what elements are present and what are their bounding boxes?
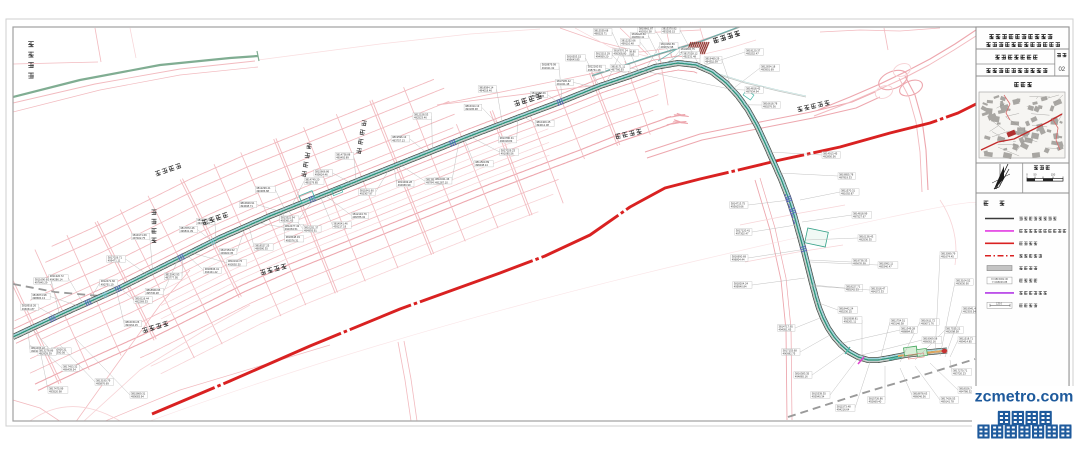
svg-text:493777.95: 493777.95 [165,276,178,280]
svg-text:493295.15: 493295.15 [662,30,675,34]
svg-text:495252.47: 495252.47 [746,52,759,56]
svg-text:493603.66: 493603.66 [731,205,744,209]
svg-text:498761.48: 498761.48 [588,68,601,72]
svg-text:493940.34: 493940.34 [812,395,825,399]
svg-text:491287.10: 491287.10 [435,180,448,184]
svg-text:495300.80: 495300.80 [614,51,627,55]
svg-text:494286.14: 494286.14 [50,277,63,281]
svg-text:496439.54: 496439.54 [63,368,76,372]
svg-text:492303.54: 492303.54 [963,310,976,314]
svg-text:490386.88: 490386.88 [256,189,269,193]
svg-text:490592.30: 490592.30 [228,262,241,266]
svg-text:497402.75: 497402.75 [132,236,145,240]
svg-text:492850.56: 492850.56 [823,155,836,159]
svg-text:498684.13: 498684.13 [32,296,45,300]
svg-text:493030.90: 493030.90 [956,282,969,286]
svg-text:497934.94: 497934.94 [746,90,759,94]
svg-text:499110.48: 499110.48 [621,42,634,46]
svg-text:499471.11: 499471.11 [108,259,121,263]
svg-text:493720.23: 493720.23 [953,372,966,376]
svg-text:494272.33: 494272.33 [871,290,884,294]
svg-text:490316.38: 490316.38 [639,30,652,34]
svg-text:497527.67: 497527.67 [853,215,866,219]
svg-text:496831.39: 496831.39 [180,229,193,233]
svg-text:02: 02 [1058,67,1065,73]
svg-text:490492.89: 490492.89 [336,156,349,160]
svg-text:zcmetro.com: zcmetro.com [975,389,1074,406]
svg-text:494966.99: 494966.99 [398,183,411,187]
svg-text:494959.20: 494959.20 [596,55,609,59]
svg-text:499643.85: 499643.85 [567,57,580,61]
svg-text:494051.65: 494051.65 [779,328,792,332]
svg-text:493923.35: 493923.35 [220,251,233,255]
svg-text:496062.16: 496062.16 [923,340,936,344]
svg-text:493217.19: 493217.19 [333,225,346,229]
svg-text:492098.58: 492098.58 [946,330,959,334]
svg-text:498380.35: 498380.35 [255,247,268,251]
svg-text:496061.87: 496061.87 [22,307,35,311]
svg-text:491092.87: 491092.87 [841,192,854,196]
svg-text:490071.76: 490071.76 [921,322,934,326]
svg-text:491663.51: 491663.51 [285,227,298,231]
svg-text:150: 150 [1051,173,1056,177]
svg-text:495876.69: 495876.69 [96,382,109,386]
svg-text:494865.16: 494865.16 [795,375,808,379]
svg-text:497760.93: 497760.93 [611,68,624,72]
svg-text:492231.48: 492231.48 [683,55,696,59]
svg-text:494441.42: 494441.42 [205,270,218,274]
svg-text:493164.15: 493164.15 [125,323,138,327]
svg-text:494786.32: 494786.32 [959,390,972,394]
svg-text:494012.38: 494012.38 [536,123,549,127]
svg-text:492269.33: 492269.33 [135,300,148,304]
svg-text:Y=498036.88: Y=498036.88 [992,280,1008,284]
svg-text:493520.98: 493520.98 [49,390,62,394]
svg-text:496804.44: 496804.44 [732,258,745,262]
svg-text:495635.99: 495635.99 [853,262,866,266]
svg-text:491911.32: 491911.32 [542,66,555,70]
svg-text:493195.38: 493195.38 [465,107,478,111]
svg-text:490276.36: 490276.36 [763,105,776,109]
svg-text:499785.32: 499785.32 [352,215,365,219]
svg-text:499940.84: 499940.84 [734,285,747,289]
svg-text:491085.56: 491085.56 [501,152,514,156]
svg-text:490791.19: 490791.19 [101,282,114,286]
svg-text:499414.85: 499414.85 [959,340,972,344]
svg-text:494216.64: 494216.64 [837,408,850,412]
svg-text:493901.69: 493901.69 [761,68,774,72]
svg-text:497819.33: 497819.33 [839,176,852,180]
svg-text:493361.65: 493361.65 [281,219,294,223]
svg-text:498438.14: 498438.14 [475,163,488,167]
svg-text:491341.48: 491341.48 [557,82,570,86]
svg-text:497302.47: 497302.47 [736,232,749,236]
svg-text:492669.40: 492669.40 [869,400,882,404]
svg-text:490682.75: 490682.75 [783,352,796,356]
svg-text:495201.11: 495201.11 [844,320,857,324]
svg-text:494018.46: 494018.46 [479,88,492,92]
svg-text:491674.45: 491674.45 [941,255,954,259]
svg-text:493757.13: 493757.13 [392,138,405,142]
svg-text:125.6: 125.6 [996,302,1003,305]
svg-text:499242.33: 499242.33 [846,288,859,292]
svg-text:493972.98: 493972.98 [661,45,674,49]
svg-text:498884.52: 498884.52 [901,330,914,334]
svg-text:499924.46: 499924.46 [315,172,328,176]
svg-text:492653.41: 492653.41 [632,35,645,39]
svg-text:492307.97: 492307.97 [360,192,373,196]
svg-text:492523.46: 492523.46 [414,116,427,120]
svg-text:499083.94: 499083.94 [131,395,144,399]
svg-text:497845.29: 497845.29 [35,281,48,285]
svg-text:495340.47: 495340.47 [879,265,892,269]
svg-text:495230.25: 495230.25 [839,310,852,314]
svg-text:498225.71: 498225.71 [594,32,607,36]
svg-text:495730.28: 495730.28 [146,291,159,295]
svg-text:496318.83: 496318.83 [500,139,513,143]
svg-text:493146.38: 493146.38 [891,322,904,326]
svg-text:493576.31: 493576.31 [286,238,299,242]
svg-text:496046.56: 496046.56 [913,395,926,399]
svg-text:490279.85: 490279.85 [305,181,318,185]
svg-text:499141.78: 499141.78 [941,400,954,404]
svg-text:492536.35: 492536.35 [859,238,872,242]
svg-text:494993.91: 494993.91 [304,228,317,232]
svg-text:494608.71: 494608.71 [240,204,253,208]
